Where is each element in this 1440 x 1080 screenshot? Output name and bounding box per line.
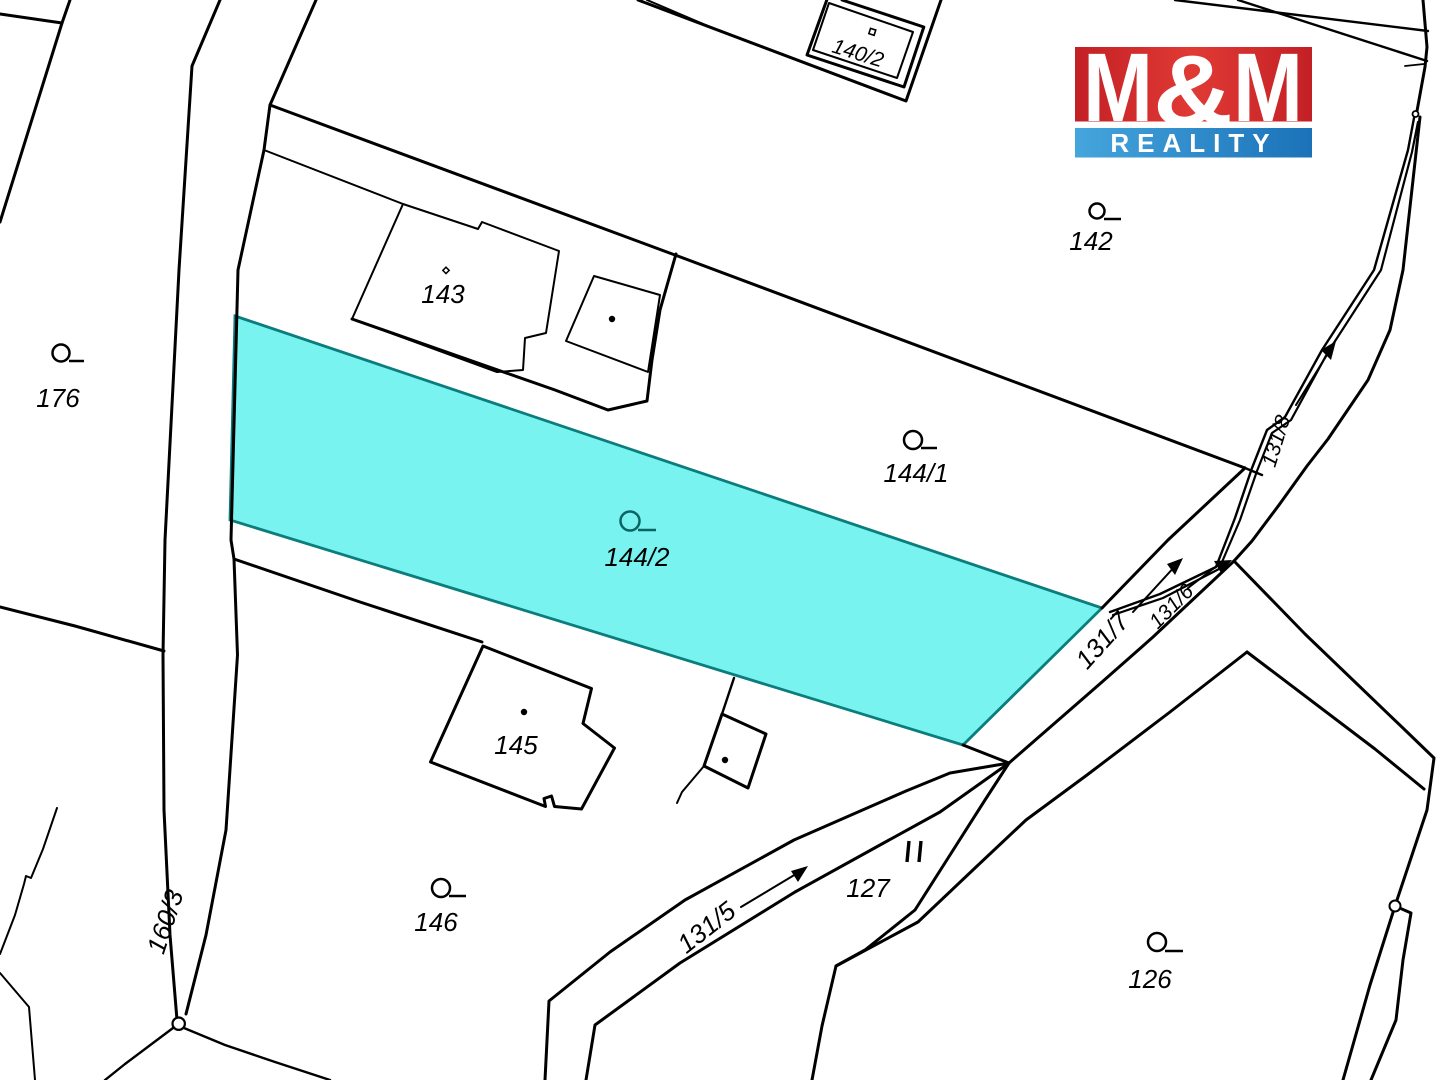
svg-text:145: 145 [494, 730, 538, 760]
svg-text:126: 126 [1128, 964, 1172, 994]
svg-text:127: 127 [846, 873, 891, 903]
svg-text:M: M [1083, 33, 1153, 142]
svg-text:176: 176 [36, 383, 80, 413]
svg-text:143: 143 [421, 279, 465, 309]
svg-text:M: M [1233, 33, 1303, 142]
svg-text:&: & [1153, 35, 1233, 147]
svg-text:144/1: 144/1 [883, 458, 948, 488]
svg-text:144/2: 144/2 [604, 542, 670, 572]
svg-text:146: 146 [414, 907, 458, 937]
svg-text:142: 142 [1069, 226, 1113, 256]
